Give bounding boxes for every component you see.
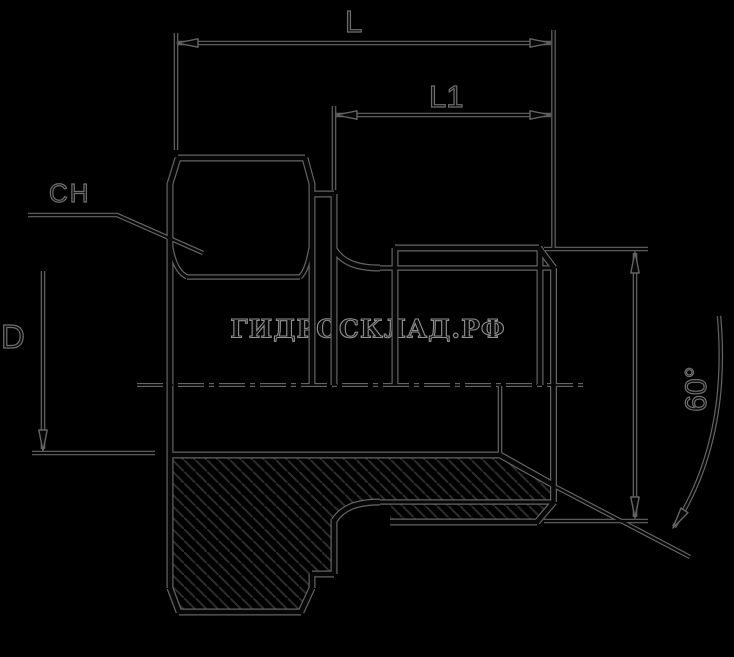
technical-drawing-canvas	[0, 0, 734, 657]
dim-label-thread-length: L1	[429, 79, 463, 115]
line-halos	[28, 30, 721, 612]
section-hatch	[170, 455, 553, 612]
dim-label-hex-size: CH	[49, 178, 91, 209]
dim-label-overall-length: L	[345, 4, 362, 40]
line-cores	[28, 30, 721, 612]
drawing-stage: ГИДРОСКЛАД.РФ L L1 CH D 60°	[0, 0, 734, 657]
dim-label-cone-angle: 60°	[680, 366, 714, 411]
dim-label-diameter: D	[1, 318, 25, 356]
